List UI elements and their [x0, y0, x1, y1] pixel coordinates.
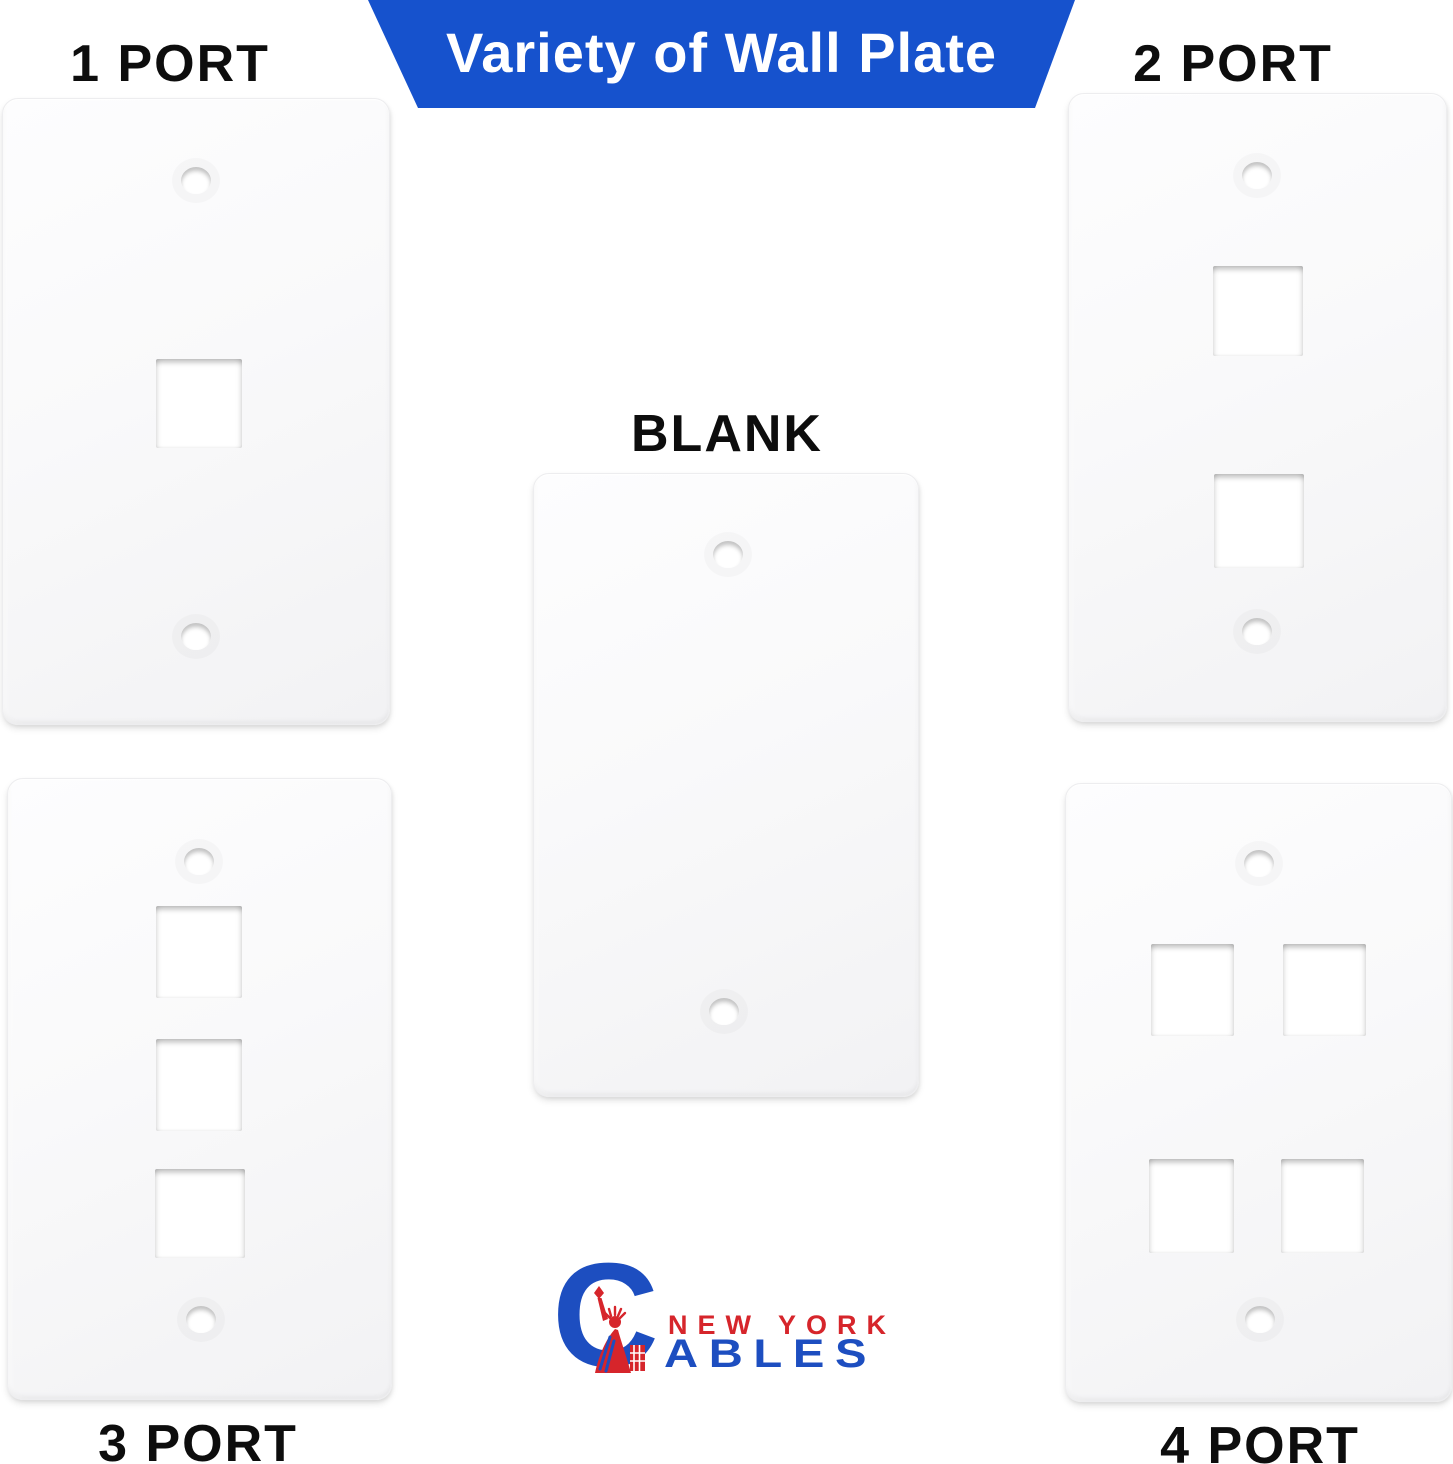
label-blank: BLANK [607, 408, 847, 460]
label-1-port: 1 PORT [50, 38, 290, 90]
statue-of-liberty-icon [582, 1284, 652, 1378]
wall-plate-3-port [7, 778, 392, 1400]
keystone-port-hole [156, 359, 242, 448]
screw-hole-top [184, 848, 214, 875]
label-3-port: 3 PORT [78, 1418, 318, 1464]
product-image-canvas: Variety of Wall Plate 1 PORT 2 PORT BLAN… [0, 0, 1453, 1464]
screw-hole-bottom [1242, 618, 1272, 645]
keystone-port-hole [1213, 266, 1303, 356]
keystone-port-hole [155, 1169, 245, 1258]
keystone-port-hole [1281, 1159, 1364, 1253]
banner-title: Variety of Wall Plate [446, 20, 997, 85]
screw-hole-bottom [181, 623, 211, 650]
screw-hole-bottom [1245, 1306, 1275, 1333]
screw-hole-top [1242, 162, 1272, 189]
wall-plate-blank [533, 473, 919, 1097]
screw-hole-bottom [186, 1306, 216, 1333]
brand-logo: C NEW YORK ABLES [552, 1258, 922, 1388]
keystone-port-hole [1151, 944, 1234, 1036]
label-2-port: 2 PORT [1113, 38, 1353, 90]
wall-plate-2-port [1068, 93, 1447, 722]
screw-hole-top [713, 541, 743, 568]
keystone-port-hole [156, 1039, 242, 1131]
logo-brand-line2: ABLES [664, 1332, 877, 1377]
banner: Variety of Wall Plate [368, 0, 1075, 108]
keystone-port-hole [1214, 474, 1304, 568]
screw-hole-top [1244, 850, 1274, 877]
screw-hole-bottom [709, 998, 739, 1025]
wall-plate-1-port [2, 98, 390, 725]
screw-hole-top [181, 167, 211, 194]
keystone-port-hole [1149, 1159, 1234, 1253]
keystone-port-hole [156, 906, 242, 998]
wall-plate-4-port [1065, 783, 1452, 1402]
keystone-port-hole [1283, 944, 1366, 1036]
label-4-port: 4 PORT [1140, 1420, 1380, 1464]
